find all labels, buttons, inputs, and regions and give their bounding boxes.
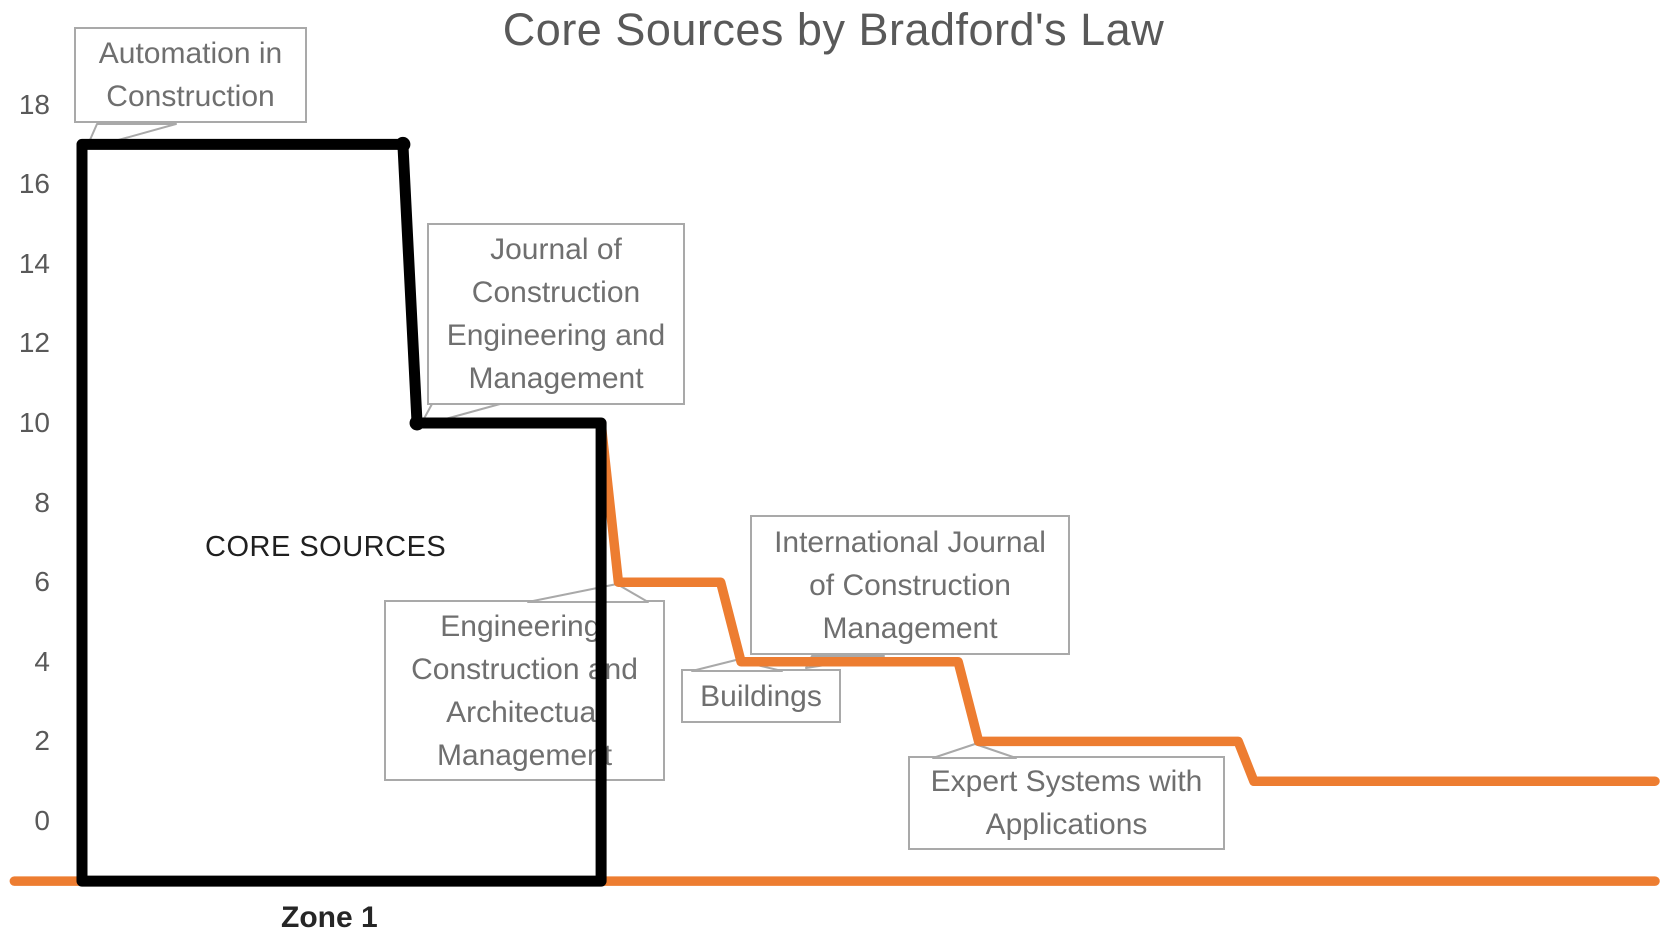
callout-text: Engineering, Construction and Architectu…: [394, 605, 655, 777]
y-tick-label-12: 12: [0, 324, 50, 362]
y-tick-label-0: 0: [0, 802, 50, 840]
y-tick-label-10: 10: [0, 404, 50, 442]
callout-text: Automation in Construction: [84, 32, 297, 118]
core-sources-zone-label: CORE SOURCES: [205, 531, 446, 564]
callout-buildings: Buildings: [681, 669, 841, 723]
callout-text: International Journal of Construction Ma…: [760, 521, 1060, 650]
callout-expert-systems-with-applications: Expert Systems with Applications: [908, 756, 1225, 850]
data-point-marker-1: [410, 416, 425, 431]
y-tick-label-2: 2: [0, 722, 50, 760]
bradford-law-chart: Core Sources by Bradford's Law 181614121…: [0, 0, 1667, 943]
y-tick-label-6: 6: [0, 563, 50, 601]
data-point-marker-0: [395, 137, 410, 152]
y-tick-label-8: 8: [0, 484, 50, 522]
y-tick-label-16: 16: [0, 165, 50, 203]
callout-text: Buildings: [700, 675, 822, 718]
callout-text: Expert Systems with Applications: [918, 760, 1215, 846]
callout-international-journal-of-construction-management: International Journal of Construction Ma…: [750, 515, 1070, 655]
y-tick-label-4: 4: [0, 643, 50, 681]
y-tick-label-18: 18: [0, 86, 50, 124]
callout-tail-jcem: [420, 404, 500, 426]
callout-tail-ijcm: [806, 656, 884, 668]
y-tick-label-14: 14: [0, 245, 50, 283]
callout-automation-in-construction: Automation in Construction: [74, 27, 307, 123]
zone-1-axis-label: Zone 1: [281, 901, 378, 935]
callout-engineering-construction-and-architectual-management: Engineering, Construction and Architectu…: [384, 600, 665, 781]
callout-journal-of-construction-engineering-and-management: Journal of Construction Engineering and …: [427, 223, 685, 405]
callout-text: Journal of Construction Engineering and …: [437, 228, 675, 400]
series-line-articles-per-source: [82, 144, 1655, 781]
chart-canvas: [0, 0, 1667, 943]
callout-tail-automation: [86, 124, 176, 149]
